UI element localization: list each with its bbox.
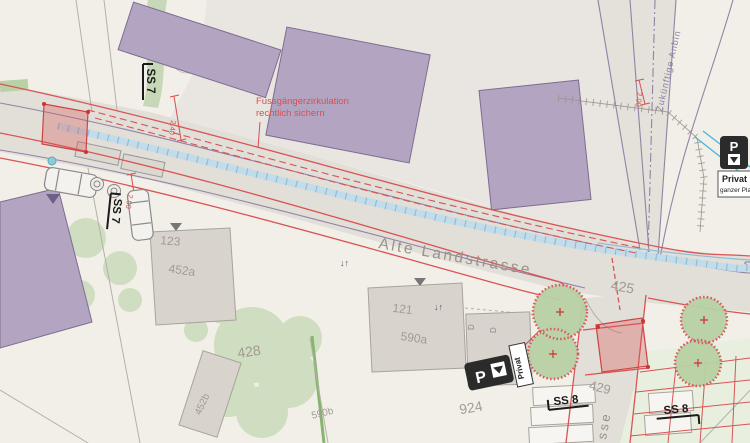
- note-pedestrian-line1: Fussgängerzirkulation: [256, 96, 349, 107]
- building-new-right: [479, 80, 591, 210]
- dim-240: 2.40: [167, 120, 178, 136]
- parking-sign-right: P Privat ganzer Pla: [718, 136, 750, 197]
- parcel-121: 121: [392, 301, 414, 317]
- entrance-arrows-1: ↓↑: [340, 258, 349, 268]
- entrance-arrows-2: ↓↑: [434, 302, 443, 312]
- dim-200-right: 2.00: [634, 92, 644, 107]
- site-plan-canvas[interactable]: Fussgängerzirkulation rechtlich sichern …: [0, 0, 750, 443]
- parking-right-ganzer: ganzer Pla: [720, 187, 750, 194]
- parking-p-letter-right: P: [730, 139, 739, 154]
- parking-right-privat: Privat: [722, 174, 747, 184]
- parcel-123: 123: [160, 233, 181, 249]
- building-590a: [368, 283, 466, 372]
- site-plan-drawing: Fussgängerzirkulation rechtlich sichern …: [0, 0, 750, 443]
- note-pedestrian-line2: rechtlich sichern: [256, 108, 325, 119]
- parcel-428: 428: [236, 342, 262, 361]
- crossing-area-right: [596, 318, 648, 372]
- svg-text:SS 8: SS 8: [663, 403, 689, 417]
- svg-text:SS 7: SS 7: [144, 69, 156, 94]
- hydrant-point: [48, 157, 56, 165]
- door-symbol-2: D: [489, 327, 498, 333]
- crossing-area-left: [42, 104, 88, 152]
- door-symbol-1: D: [467, 324, 476, 330]
